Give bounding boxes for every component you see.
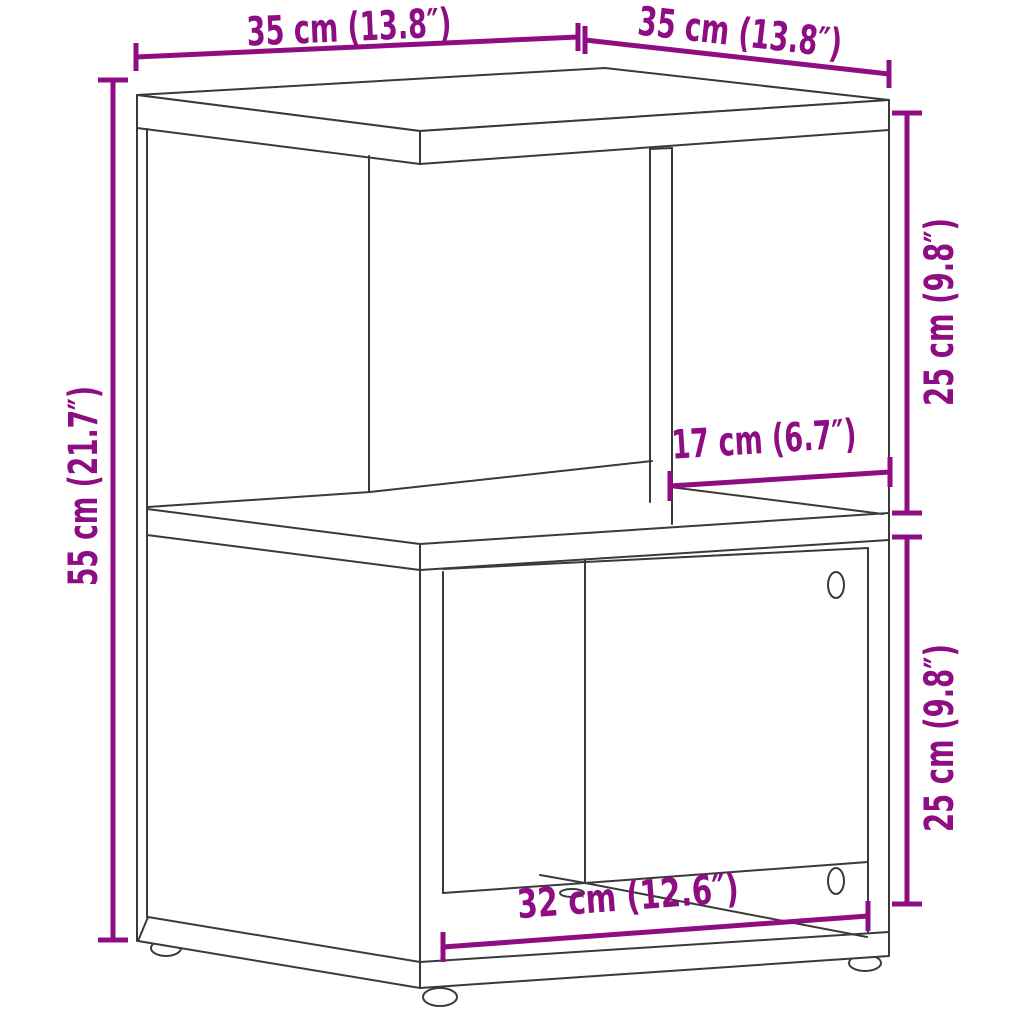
cabinet-edges	[137, 95, 889, 956]
dimension-top-depth: 35 cm (13.8″)	[136, 0, 578, 71]
dimension-upper-compartment-width: 17 cm (6.7″)	[670, 411, 890, 501]
dimension-label: 55 cm (21.7″)	[61, 386, 107, 586]
upper-floor-right-edge	[670, 487, 883, 514]
cabinet-drawing	[137, 68, 889, 1006]
dimension-diagram-page: 35 cm (13.8″) 35 cm (13.8″) 55 cm (21.7″…	[0, 0, 1024, 1024]
dimension-label: 32 cm (12.6″)	[516, 866, 741, 929]
furniture-dimension-diagram: 35 cm (13.8″) 35 cm (13.8″) 55 cm (21.7″…	[0, 0, 1024, 1024]
plinth-left-face	[138, 917, 420, 988]
screw-hole-lower	[828, 868, 844, 894]
dimension-overall-height: 55 cm (21.7″)	[61, 80, 128, 940]
cabinet-plinth	[138, 917, 889, 988]
lower-ceiling-edge	[443, 548, 868, 569]
plinth-right-face	[420, 932, 889, 988]
foot-front	[423, 988, 457, 1006]
cabinet-top-panel	[137, 68, 889, 164]
screw-hole-upper	[828, 572, 844, 598]
dimension-label: 17 cm (6.7″)	[670, 411, 858, 469]
dimension-label: 35 cm (13.8″)	[246, 0, 453, 55]
dimension-upper-compartment-height: 25 cm (9.8″)	[892, 113, 963, 513]
dimension-label: 25 cm (9.8″)	[917, 644, 963, 832]
shelf-top-edge	[147, 509, 889, 544]
upper-divider-top-edge	[650, 148, 672, 149]
upper-floor-back-edges	[148, 461, 652, 507]
dimension-label: 25 cm (9.8″)	[917, 218, 963, 406]
cabinet-middle-shelf	[147, 509, 889, 570]
dimension-lower-compartment-height: 25 cm (9.8″)	[892, 537, 963, 904]
